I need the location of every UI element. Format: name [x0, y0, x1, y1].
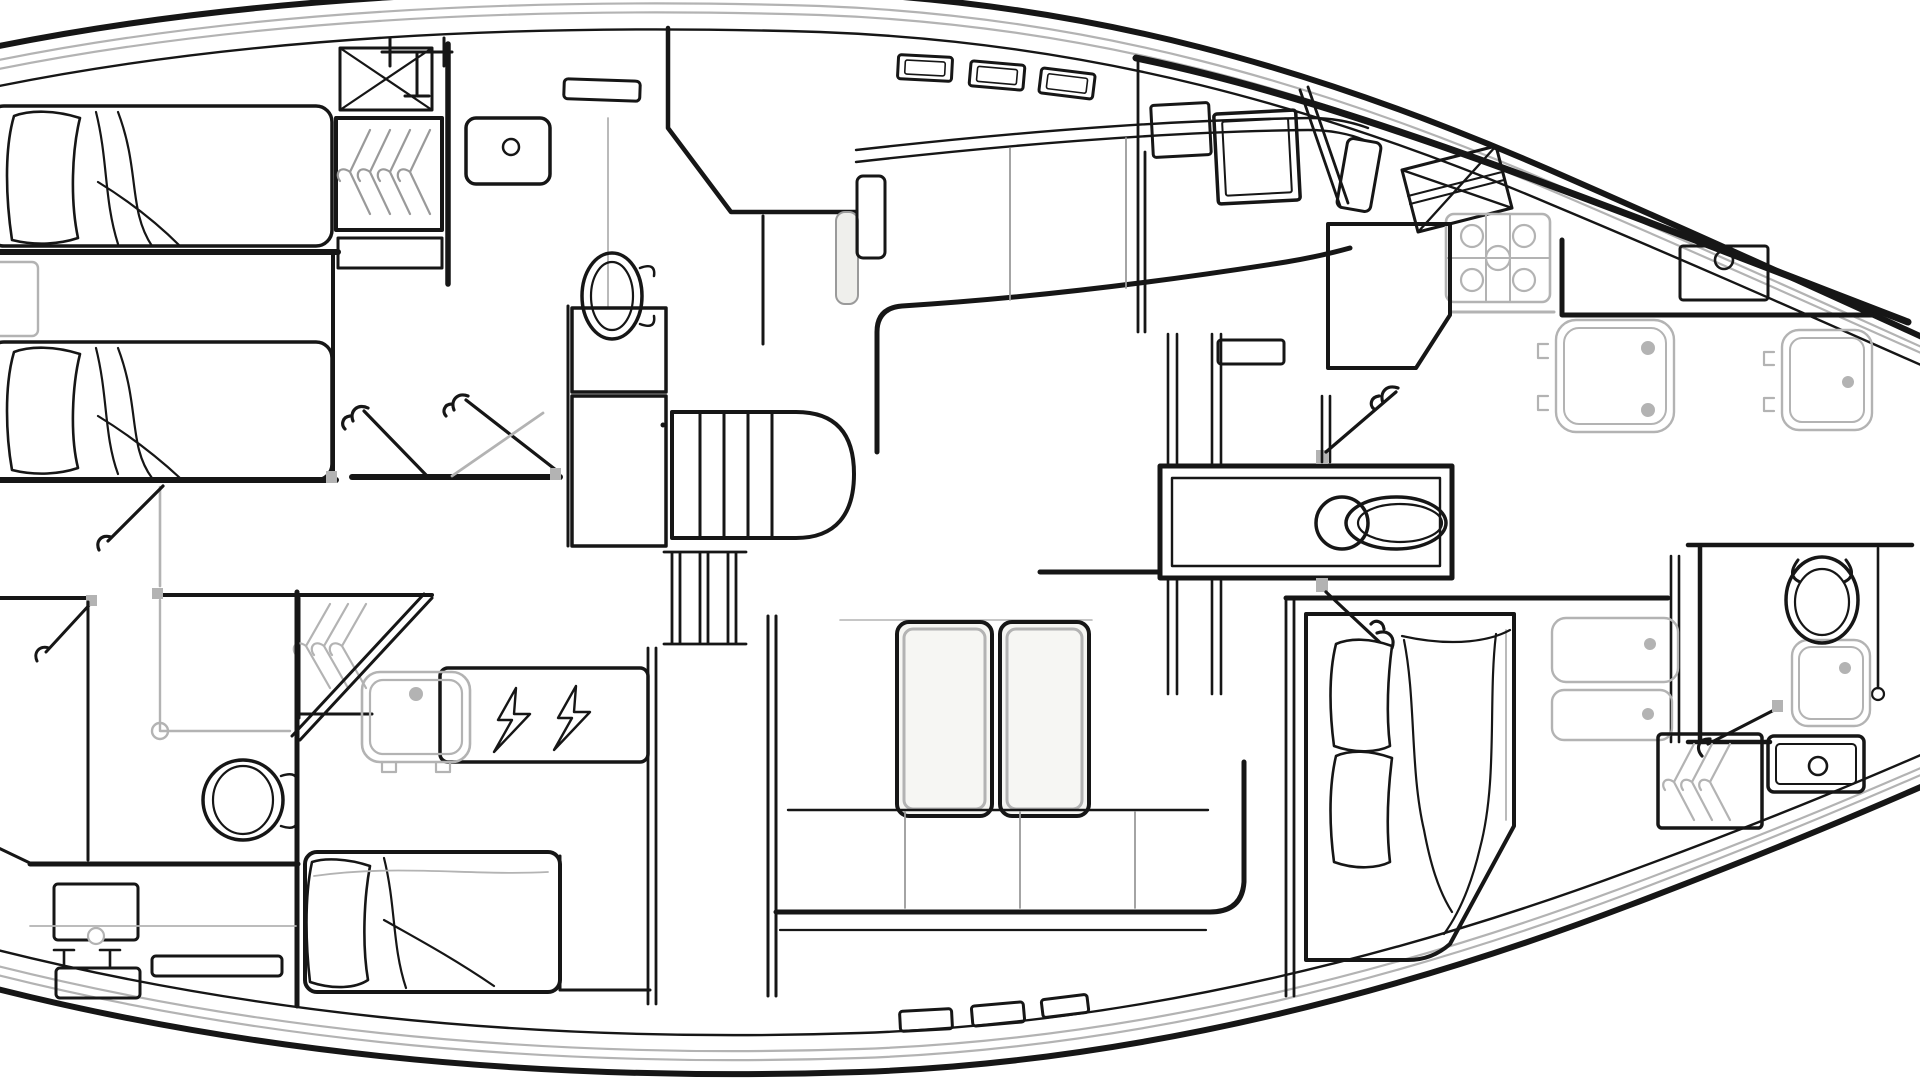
deck-hatch-top-2-inner — [976, 66, 1017, 84]
afthead-vanity-inner — [1776, 744, 1856, 784]
companionway-step-dot — [661, 423, 666, 428]
floor-hatch-a1-inner — [1799, 647, 1863, 719]
galley-peninsula — [1328, 224, 1450, 368]
cabin3-bulkhead — [1286, 598, 1294, 996]
cabin3-pillow-2 — [1331, 752, 1393, 868]
floor-hatch-c1 — [1552, 618, 1678, 682]
fwd-head-door-alt — [452, 413, 543, 476]
electrical-bolt-2 — [554, 686, 590, 750]
deck-hatch-bottom-2 — [971, 1002, 1025, 1026]
midhead-toilet-seat — [1358, 504, 1442, 542]
wardrobe2-hangers — [294, 604, 366, 688]
floor-hatch-g2 — [1782, 330, 1872, 430]
hinge-cap-5 — [1772, 700, 1783, 712]
galley-stove-burner-2 — [1513, 225, 1535, 247]
fwd-porthole — [0, 262, 38, 336]
floor-plan-canvas — [0, 0, 1920, 1080]
floor-hatch-cabin2-tabs — [382, 762, 450, 772]
electrical-bolt-1 — [494, 688, 530, 752]
cabin3-blanket — [1402, 630, 1510, 934]
afthead-vanity-drain — [1809, 757, 1827, 775]
fwd-head-basin — [466, 118, 550, 184]
midhead-box — [1160, 466, 1452, 578]
fwd-berth-lower-blanket — [96, 348, 180, 478]
floor-hatch-g1-dot-2 — [1641, 403, 1655, 417]
fwd-head-door — [444, 395, 556, 470]
salon-settee-dividers — [1010, 138, 1126, 300]
galley-stove-burner-1 — [1461, 225, 1483, 247]
floor-hatch-g1-dot-1 — [1641, 341, 1655, 355]
floor-hatch-g2-tabs — [1764, 352, 1774, 411]
floor-hatch-a1-dot — [1839, 662, 1851, 674]
afthead-pole-end — [1872, 688, 1884, 700]
companionway-box — [572, 396, 666, 546]
head2-door — [36, 602, 92, 661]
salon-settee-arm-left — [857, 176, 885, 258]
fwd-head-basin-drain — [503, 139, 519, 155]
midhead-jamb-cap-bottom — [1316, 578, 1328, 592]
galley-bulkhead — [1138, 60, 1145, 332]
deck-hatch-top-3-inner — [1046, 74, 1088, 94]
hinge-cap-2 — [550, 468, 561, 480]
salon-settee-top-front — [877, 248, 1350, 452]
head2-toilet-bowl — [203, 760, 283, 840]
afthead-toilet-seat — [1795, 569, 1849, 635]
galley-stove-grid — [1446, 214, 1550, 302]
floor-hatch-g1-tabs — [1538, 344, 1548, 410]
salon-settee-top-back — [856, 118, 1368, 162]
fwd-berth-lower-pillow — [7, 348, 80, 474]
head2-wall-aft-chine — [0, 842, 32, 864]
midhead-door-top — [1326, 387, 1398, 452]
deck-hatch-top-1-inner — [905, 60, 946, 76]
salon-cushion-left — [897, 622, 992, 816]
fwd-locker-hangers — [338, 130, 430, 214]
salon-settee-bottom-dividers — [905, 812, 1135, 908]
floor-hatch-c2 — [1552, 690, 1672, 740]
fwd-cabin-door — [343, 406, 428, 477]
companionway-treads — [700, 414, 772, 536]
aft-wardrobe-hangers — [1663, 744, 1730, 820]
galley-return — [1218, 340, 1284, 364]
floor-hatch-a1 — [1792, 640, 1870, 726]
floor-hatch-cabin2 — [362, 672, 470, 762]
floor-hatch-g2-dot — [1842, 376, 1854, 388]
head2-shelf — [152, 956, 282, 976]
cabin2-door — [98, 486, 163, 550]
fwd-head-shelf — [564, 79, 641, 102]
floor-hatch-c2-dot — [1642, 708, 1654, 720]
companionway-hatch-garage — [836, 212, 858, 304]
galley-stove-burner-3 — [1461, 269, 1483, 291]
nav-bulkheads — [560, 616, 776, 996]
floor-hatch-c1-dot — [1644, 638, 1656, 650]
hull-top-rubrail-outer — [0, 3, 1920, 362]
galley-cabinet-b — [1214, 110, 1301, 204]
deck-hatch-bottom-1 — [900, 1009, 953, 1032]
walkway-posts — [1168, 334, 1221, 694]
hinge-cap-1 — [326, 471, 337, 483]
head2-toilet-seat — [213, 766, 273, 834]
salon-settee-arm-right — [1336, 138, 1382, 213]
galley-stove-burner-4 — [1513, 269, 1535, 291]
companionway-lower-steps — [664, 552, 746, 644]
cabin2-bed-blanket — [384, 858, 494, 988]
fwd-berth-upper-blanket — [96, 112, 180, 246]
yacht-deck-plan — [0, 0, 1920, 1080]
galley-cabinet-a — [1151, 103, 1212, 158]
deck-hatch-bottom-3 — [1041, 994, 1089, 1017]
fwd-head-toilet-seat — [591, 262, 633, 330]
midhead-box-inner — [1172, 478, 1440, 566]
hinge-cap-4 — [152, 588, 163, 599]
floor-hatch-cabin2-dot — [409, 687, 423, 701]
companionway-wall-fwd — [668, 28, 856, 212]
cabin2-bed-pillow — [307, 859, 371, 987]
hull-top-outline — [0, 0, 1920, 352]
cabin3-pillow-1 — [1331, 640, 1393, 752]
head2-shower — [160, 600, 290, 731]
head2-faucet-taps — [54, 950, 120, 968]
salon-cushion-right — [1000, 622, 1089, 816]
fwd-berth-upper-pillow — [7, 112, 80, 244]
fwd-locker-shelf — [338, 238, 442, 268]
floor-hatch-g1 — [1556, 320, 1674, 432]
head2-vanity-knob — [88, 928, 104, 944]
